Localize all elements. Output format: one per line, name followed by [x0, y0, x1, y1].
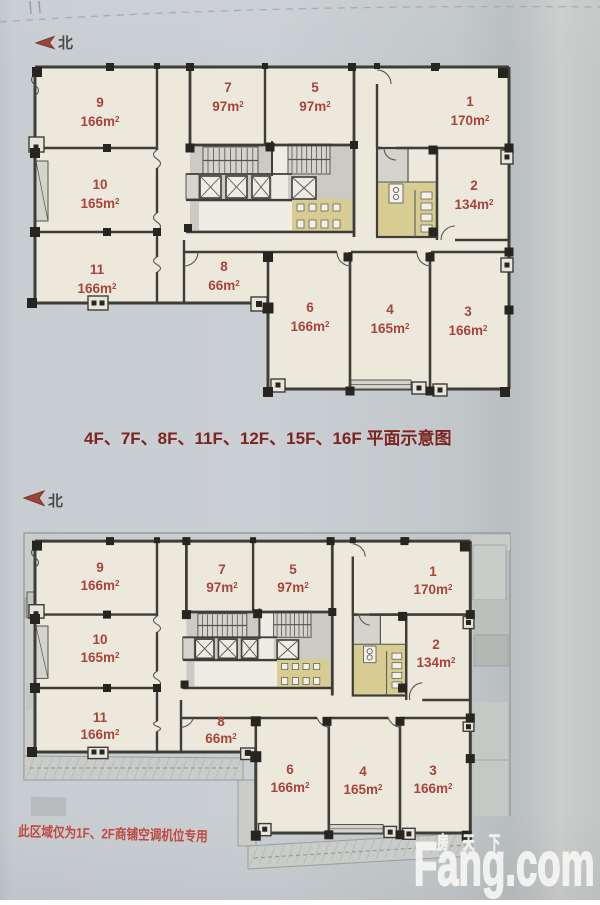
svg-text:166m2: 166m2 [81, 578, 121, 593]
svg-text:165m2: 165m2 [81, 650, 121, 665]
svg-text:166m2: 166m2 [81, 114, 121, 129]
svg-text:2: 2 [432, 637, 440, 652]
svg-text:8: 8 [220, 259, 228, 274]
svg-text:11: 11 [90, 262, 105, 277]
svg-text:6: 6 [286, 762, 294, 777]
svg-text:5: 5 [311, 80, 319, 95]
svg-text:166m2: 166m2 [449, 323, 489, 338]
svg-text:170m2: 170m2 [451, 113, 491, 128]
svg-text:166m2: 166m2 [414, 781, 454, 796]
svg-text:1: 1 [466, 94, 474, 109]
svg-text:134m2: 134m2 [455, 197, 495, 212]
svg-text:6: 6 [306, 300, 314, 315]
svg-text:166m2: 166m2 [81, 727, 121, 742]
svg-text:4F、7F、8F、11F、12F、15F、16F 平面示意图: 4F、7F、8F、11F、12F、15F、16F 平面示意图 [84, 428, 451, 448]
svg-text:1: 1 [429, 564, 437, 579]
svg-text:7: 7 [224, 80, 232, 95]
svg-text:166m2: 166m2 [78, 281, 118, 296]
svg-text:165m2: 165m2 [344, 782, 384, 797]
svg-text:166m2: 166m2 [291, 319, 331, 334]
svg-text:Fang.com: Fang.com [414, 830, 595, 898]
svg-text:3: 3 [464, 304, 472, 319]
svg-text:165m2: 165m2 [371, 321, 411, 336]
svg-text:10: 10 [92, 632, 107, 647]
svg-text:3: 3 [429, 763, 437, 778]
svg-text:9: 9 [96, 560, 104, 575]
svg-text:5: 5 [289, 562, 297, 577]
svg-text:北: 北 [48, 493, 63, 510]
svg-text:10: 10 [92, 177, 107, 192]
svg-text:2: 2 [470, 178, 478, 193]
svg-text:166m2: 166m2 [271, 780, 311, 795]
svg-text:4: 4 [359, 764, 367, 779]
svg-text:134m2: 134m2 [417, 655, 457, 670]
svg-text:北: 北 [58, 35, 73, 52]
svg-text:170m2: 170m2 [414, 582, 454, 597]
svg-text:9: 9 [96, 95, 104, 110]
svg-text:165m2: 165m2 [81, 196, 121, 211]
svg-text:4: 4 [386, 302, 394, 317]
svg-text:8: 8 [217, 714, 225, 729]
svg-text:7: 7 [218, 562, 226, 577]
svg-text:11: 11 [93, 710, 108, 725]
